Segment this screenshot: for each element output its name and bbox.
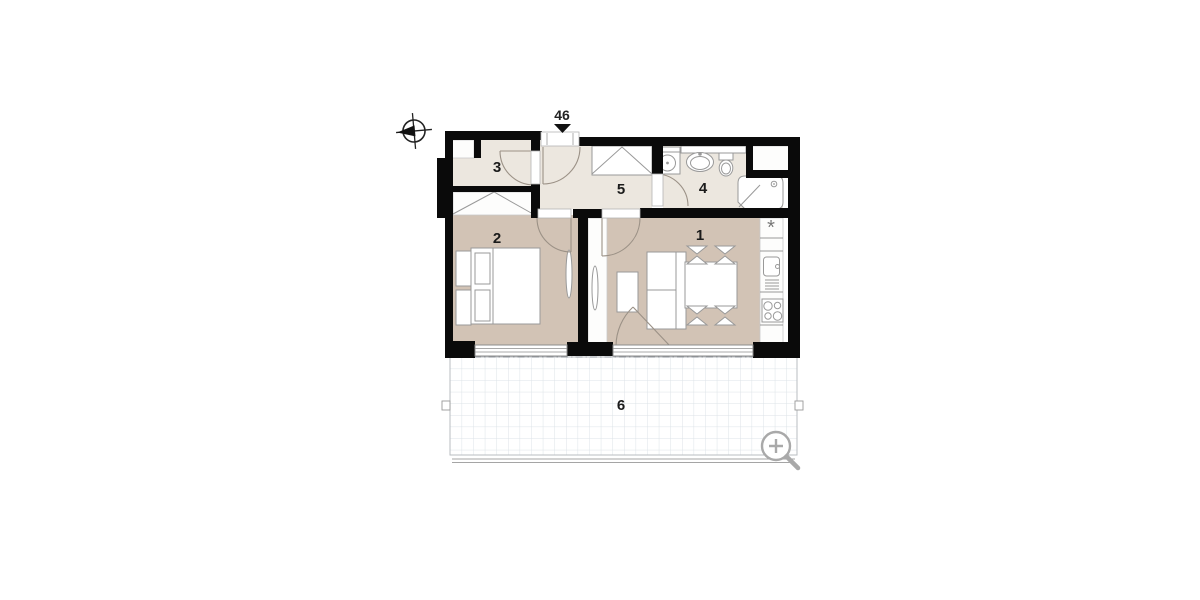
compass-icon	[394, 111, 433, 150]
room-label-storage: 3	[493, 159, 501, 176]
bathroom-door-threshold	[652, 174, 663, 206]
shower-head-dot	[773, 183, 775, 185]
compass-needle	[397, 125, 416, 138]
fridge-symbol: *	[767, 217, 775, 239]
wall-left	[445, 131, 453, 346]
dining-table	[685, 262, 737, 308]
terrace-left-post	[442, 401, 450, 410]
room-label-hall: 5	[617, 181, 625, 198]
wall-hall-bath	[652, 146, 663, 174]
wall-left-jut	[437, 158, 445, 218]
floorplan-canvas: *	[0, 0, 1200, 600]
bedroom-closet	[453, 192, 533, 215]
room-label-bedroom: 2	[493, 230, 501, 247]
room-label-bathroom: 4	[699, 180, 708, 197]
wall-storage-hall-upper	[531, 140, 540, 151]
floorplan-svg: *	[0, 0, 1200, 600]
wall-pier-southeast	[753, 342, 800, 358]
kitchen-faucet	[776, 265, 780, 269]
shaft-nook	[452, 140, 474, 158]
nightstand	[456, 290, 471, 325]
room-label-terrace: 6	[617, 397, 625, 414]
bathroom-counter	[681, 146, 746, 153]
windows	[475, 345, 753, 356]
storage-door-threshold	[531, 151, 540, 184]
toilet-tank	[719, 153, 733, 160]
wall-bedroom-living	[578, 209, 588, 345]
unit-number-label: 46	[554, 107, 570, 123]
wall-storage-closet	[445, 186, 540, 192]
terrace-right-post	[795, 401, 803, 410]
bed-pillow	[475, 253, 490, 284]
wall-top-right	[578, 137, 800, 146]
washing-machine-dot	[666, 162, 669, 165]
wall-niche-left	[746, 146, 753, 172]
bedroom-window	[475, 345, 567, 356]
living-window	[613, 345, 753, 356]
room-storage-floor-upper	[481, 140, 533, 158]
radiator	[592, 266, 598, 310]
wall-pier-south-center	[567, 342, 613, 356]
terrace-edge-lines	[452, 459, 795, 463]
bed-pillow	[475, 290, 490, 321]
bedroom-door-threshold	[538, 209, 571, 218]
living-door-threshold	[602, 209, 640, 218]
coffee-table	[617, 272, 638, 312]
wall-bath-south	[640, 208, 800, 218]
shower	[738, 176, 783, 209]
wall-niche-bottom	[746, 170, 790, 178]
wall-right	[788, 138, 800, 353]
wall-top-left	[445, 131, 542, 140]
room-label-living: 1	[696, 227, 704, 244]
entrance-marker: 46	[554, 107, 571, 133]
nightstand	[456, 251, 471, 286]
hall-wardrobe	[592, 146, 652, 175]
bathroom-sink-faucet	[698, 152, 702, 156]
shaft-niche	[750, 146, 790, 171]
wall-nook	[474, 140, 481, 158]
radiator	[566, 250, 572, 298]
wall-pier-southwest	[445, 341, 475, 358]
